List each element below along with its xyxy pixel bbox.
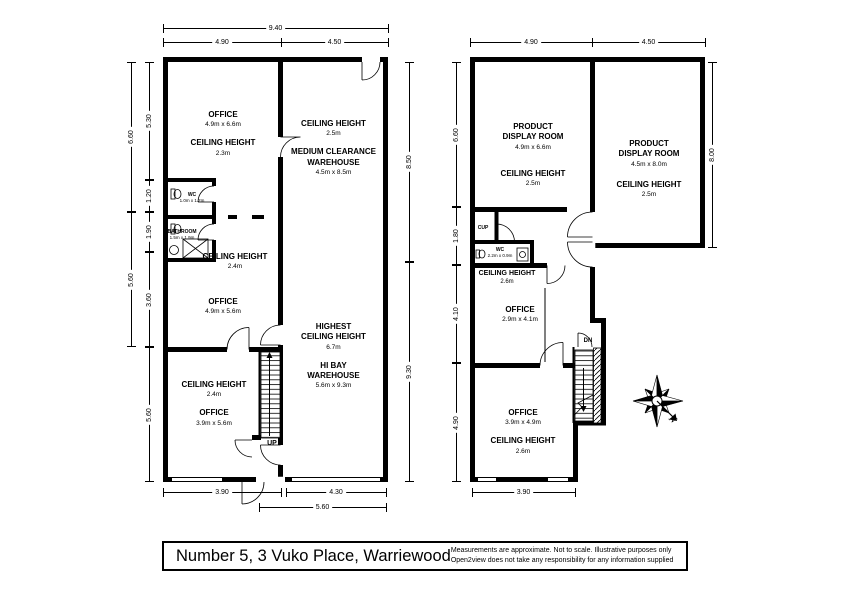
dim-ground-left-2: 1.20	[149, 180, 150, 212]
dim-ground-top-right: 4.50	[281, 42, 388, 43]
room-label-ground-office-bottom: CEILING HEIGHT 2.4m OFFICE 3.9m x 5.6m	[162, 380, 266, 428]
dim-first-left-2: 1.80	[456, 207, 457, 265]
room-label-display-left: PRODUCT DISPLAY ROOM 4.9m x 6.6m CEILING…	[477, 122, 589, 189]
room-label-first-office-mid: OFFICE 2.9m x 4.1m	[466, 305, 574, 325]
dim-first-left-3: 4.10	[456, 265, 457, 363]
room-label-first-wc: WC 2.2m x 0.9m	[479, 247, 521, 259]
dim-ground-bottom-right: 4.30	[286, 492, 386, 493]
dim-ground-top-left: 4.90	[163, 42, 281, 43]
room-label-bathroom: BATHROOM 1.5m x 1.9m	[161, 229, 203, 241]
floorplan-sheet: OFFICE 4.9m x 6.6m CEILING HEIGHT 2.3m C…	[0, 0, 842, 595]
dim-ground-left-outer-mid: 5.60	[131, 212, 132, 347]
dim-first-bottom: 3.90	[472, 492, 575, 493]
room-label-ground-mid-ch: CEILING HEIGHT 2.4m	[180, 252, 290, 272]
room-label-hibay-warehouse: HIGHEST CEILING HEIGHT 6.7m HI BAY WAREH…	[285, 322, 382, 391]
page-title: Number 5, 3 Vuko Place, Warriewood	[164, 547, 451, 566]
dim-first-left-1: 6.60	[456, 62, 457, 207]
disclaimer-line-1: Measurements are approximate. Not to sca…	[451, 546, 680, 557]
floorplan-drawing	[0, 0, 842, 595]
dim-first-right: 8.00	[712, 62, 713, 248]
dim-ground-left-outer-top: 6.60	[131, 62, 132, 212]
room-label-first-office-bottom: OFFICE 3.9m x 4.9m CEILING HEIGHT 2.6m	[468, 408, 578, 456]
room-label-ground-office-top: OFFICE 4.9m x 6.6m CEILING HEIGHT 2.3m	[168, 110, 278, 158]
room-label-ground-wc: WC 1.0m x 1.2m	[170, 192, 214, 204]
stairs-up-label: UP	[258, 440, 286, 447]
room-label-ground-office-mid: OFFICE 4.9m x 5.6m	[168, 297, 278, 317]
dim-ground-bottom-total: 5.60	[259, 507, 386, 508]
room-label-medium-warehouse: CEILING HEIGHT 2.5m MEDIUM CLEARANCE WAR…	[285, 119, 382, 178]
dim-ground-left-4: 3.60	[149, 252, 150, 347]
stairs-down-label: DN	[577, 338, 599, 344]
sink-icon	[170, 246, 179, 255]
disclaimer: Measurements are approximate. Not to sca…	[451, 546, 686, 567]
dim-ground-bottom-left: 3.90	[163, 492, 281, 493]
room-label-display-right: PRODUCT DISPLAY ROOM 4.5m x 8.0m CEILING…	[597, 139, 701, 200]
dim-ground-left-3: 1.90	[149, 212, 150, 252]
dim-ground-left-1: 5.30	[149, 62, 150, 180]
title-bar: Number 5, 3 Vuko Place, Warriewood Measu…	[162, 541, 688, 571]
dim-ground-top-total: 9.40	[163, 28, 388, 29]
dim-first-top-right: 4.50	[592, 42, 705, 43]
dim-first-top-left: 4.90	[470, 42, 592, 43]
dim-ground-right-bottom: 9.30	[409, 262, 410, 482]
dim-first-left-4: 4.90	[456, 363, 457, 482]
room-label-first-mid-ch: CEILING HEIGHT 2.6m	[457, 269, 557, 287]
dim-ground-left-5: 5.60	[149, 347, 150, 482]
dim-ground-right-top: 8.50	[409, 62, 410, 262]
disclaimer-line-2: Open2view does not take any responsibili…	[451, 556, 680, 567]
room-label-cupboard: CUP	[471, 225, 495, 231]
